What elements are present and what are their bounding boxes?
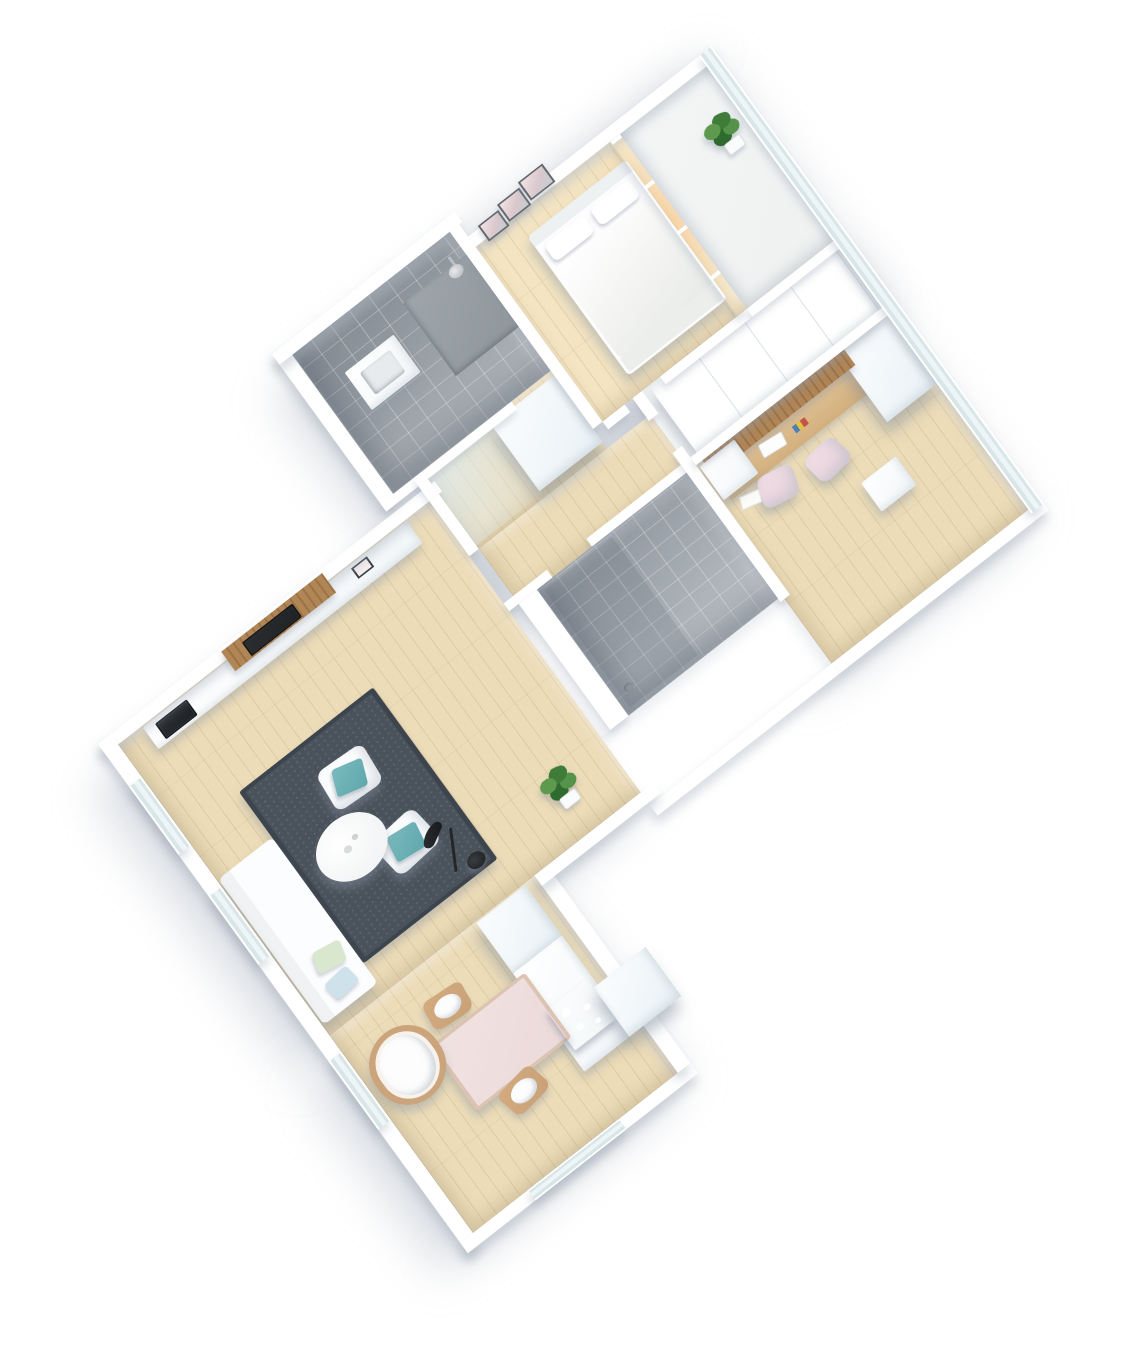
coffee-cup-1 <box>342 844 353 855</box>
floorplan-stage <box>0 0 1140 1352</box>
coffee-cup-2 <box>351 832 360 841</box>
sofa-pillow-blue <box>323 965 359 1000</box>
teal-pillow-2 <box>386 821 427 863</box>
teal-pillow-1 <box>331 757 368 798</box>
isometric-scene <box>0 19 1140 1246</box>
